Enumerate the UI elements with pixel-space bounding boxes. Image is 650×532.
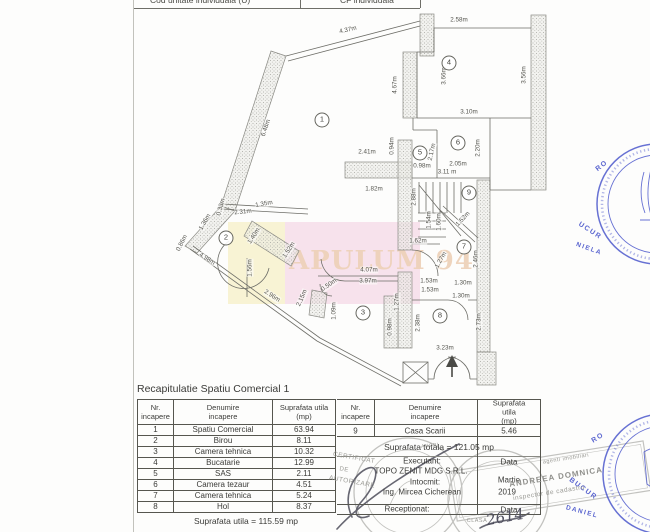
stamp-fragment: RO <box>590 431 605 444</box>
stamp-fragment: CERTIFICAT <box>332 451 375 465</box>
stamp-text-layer: ROUCURNIELAROBUCURDANIELCERTIFICATDEAUTO… <box>0 0 650 532</box>
stamp-fragment: AUTORIZARE <box>328 474 375 489</box>
document-page: Cod unitate individuala (U) CF individua… <box>0 0 650 532</box>
stamp-fragment: CLASA <box>467 518 488 524</box>
stamp-fragment: RO <box>595 159 610 173</box>
stamp-fragment: 2614 <box>485 505 526 529</box>
stamp-fragment: ANCPI <box>421 442 439 450</box>
stamp-fragment: NIELA <box>575 241 603 257</box>
stamp-fragment: ANDREEA DOMNICA <box>509 465 604 489</box>
stamp-fragment: DANIEL <box>565 504 599 519</box>
stamp-fragment: DE <box>339 466 349 474</box>
stamp-fragment: agenti imobiliari <box>542 452 589 465</box>
stamp-fragment: UCUR <box>577 221 603 241</box>
